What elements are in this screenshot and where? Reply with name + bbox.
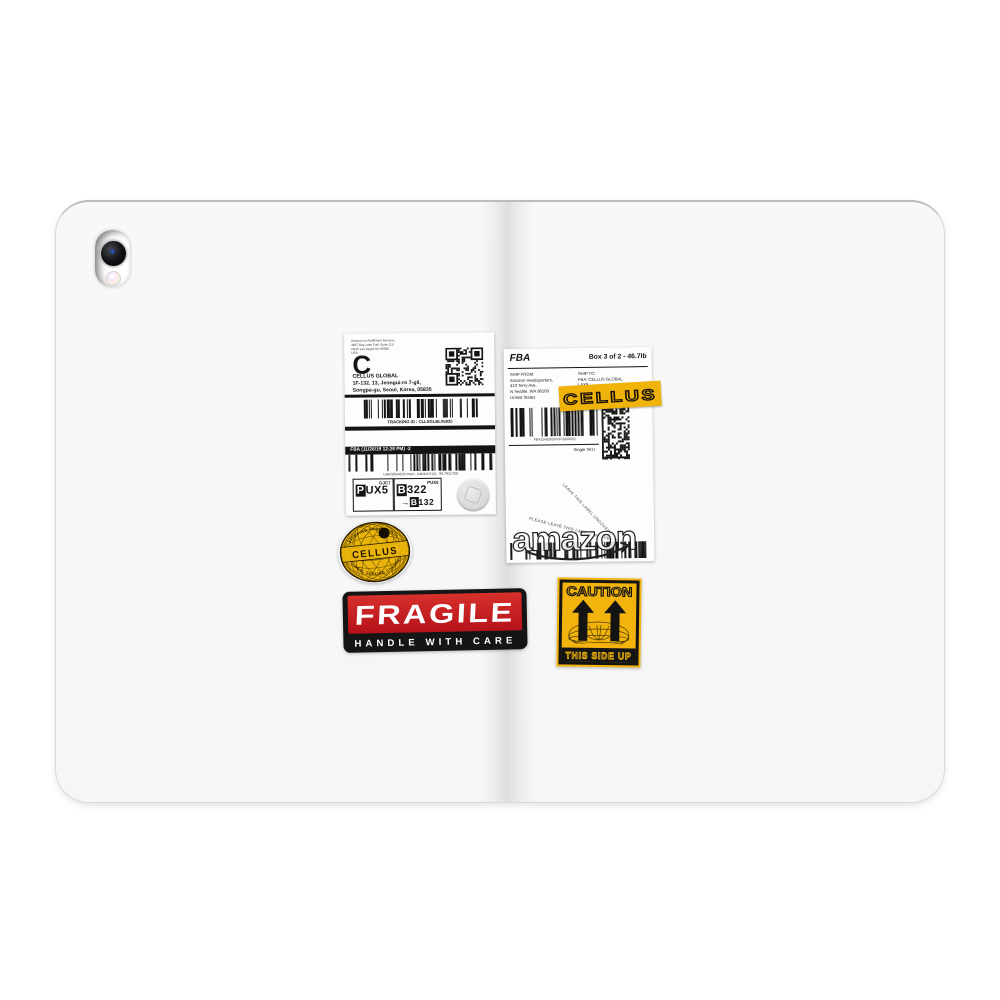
camera-flash-icon <box>106 271 121 286</box>
sort-box-2-line1: B322 <box>395 485 441 497</box>
fragile-subtitle-svg: HANDLE WITH CARE <box>350 633 520 649</box>
sort-box-1-value: PUX5 <box>354 485 393 497</box>
fba-heading: FBA <box>510 353 531 364</box>
caution-graphic-svg <box>563 598 636 644</box>
caution-sticker: CAUTION THIS SIDE <box>556 577 641 667</box>
inverted-letter: B <box>410 497 419 507</box>
amazon-fba-label: FBA Box 3 of 2 - 46.7lb SHIP FROM: Amazo… <box>504 347 655 563</box>
tracking-barcode-icon <box>362 398 478 418</box>
cellus-tape-text-svg: CELLUS <box>559 381 662 412</box>
sort-box-2-line2: →B132 <box>395 496 441 506</box>
fragile-subtitle: HANDLE WITH CARE <box>354 635 516 648</box>
tracking-id: TRACKING ID : CLLSGLBL05835 <box>345 418 495 425</box>
sort-code-box-1: GJC7 PUX5 <box>353 478 394 511</box>
datamatrix-code-icon <box>601 404 630 459</box>
arrow-right-icon: → <box>401 497 410 507</box>
inverted-letter: P <box>356 485 366 497</box>
cellus-tape-sticker: CELLUS <box>559 381 662 412</box>
ship-from-address: SHIP FROM: Amazon Headquarters, 410 Terr… <box>510 371 553 400</box>
recipient-address: 1F-132, 13, Jeongui-ro 7-gil, Songpa-gu,… <box>353 380 432 394</box>
sort-code-box-2: PUX5 B322 →B132 <box>394 478 442 512</box>
sort-box-2-line1-rest: 322 <box>407 484 427 496</box>
fba-barcode-block: FBA15HD9SVVIFU006032 Single SKU <box>508 407 601 453</box>
camera-lens-icon <box>100 240 127 267</box>
recipient-company: CELLUS GLOBAL <box>352 373 398 379</box>
sort-box-2-line2-rest: 132 <box>418 496 434 506</box>
camera-cutout <box>94 229 131 288</box>
fragile-red-panel: FRAGILE <box>347 592 522 634</box>
caution-subtitle-svg: THIS SIDE UP <box>562 648 634 661</box>
caution-subtitle: THIS SIDE UP <box>565 651 631 662</box>
half-globe-icon <box>569 622 629 645</box>
fragile-title: FRAGILE <box>354 597 515 630</box>
divider-bar <box>345 425 495 431</box>
header-rule <box>508 366 648 369</box>
fragile-strip: HANDLE WITH CARE <box>348 630 522 652</box>
caption-rule <box>509 444 599 446</box>
globe-badge-svg: CELLUS SHIPPING FROM SEOUL GLOBAL SELLIN… <box>335 517 415 586</box>
qr-code-icon <box>445 347 483 385</box>
caution-strip: THIS SIDE UP <box>561 647 635 662</box>
shipment-barcode-icon <box>348 453 492 472</box>
product-photo: Amazon.ca Fulfillment Services 3837 Bay … <box>0 0 1000 1000</box>
cellus-globe-badge: CELLUS SHIPPING FROM SEOUL GLOBAL SELLIN… <box>335 517 415 586</box>
fba-barcode-icon <box>510 407 598 437</box>
box-count-weight: Box 3 of 2 - 46.7lb <box>589 353 647 361</box>
sort-box-1-rest: UX5 <box>365 484 388 496</box>
cellus-tape-text: CELLUS <box>563 386 658 408</box>
up-arrows-icon <box>572 600 627 642</box>
amazon-logo: amazon <box>508 517 645 563</box>
caution-title: CAUTION <box>566 584 632 600</box>
fragile-sticker: FRAGILE HANDLE WITH CARE <box>342 588 527 653</box>
fba-barcode-caption: FBA15HD9SVVIFU006032 <box>509 437 601 442</box>
single-sku-note: Single SKU <box>509 447 601 453</box>
caution-frame: CAUTION THIS SIDE <box>558 579 639 665</box>
divider-bar <box>345 393 495 398</box>
tablet-folio-case <box>55 200 945 803</box>
inverted-letter: B <box>397 484 408 496</box>
embossed-seal-icon <box>457 478 490 511</box>
caution-title-svg: CAUTION <box>563 583 635 600</box>
shipping-label: Amazon.ca Fulfillment Services 3837 Bay … <box>344 332 496 516</box>
shipment-barcode-caption: UAKG5toAB(1/med - 1dz/2of1/12) - 99.7931… <box>346 471 496 477</box>
fragile-title-svg: FRAGILE <box>350 594 521 632</box>
